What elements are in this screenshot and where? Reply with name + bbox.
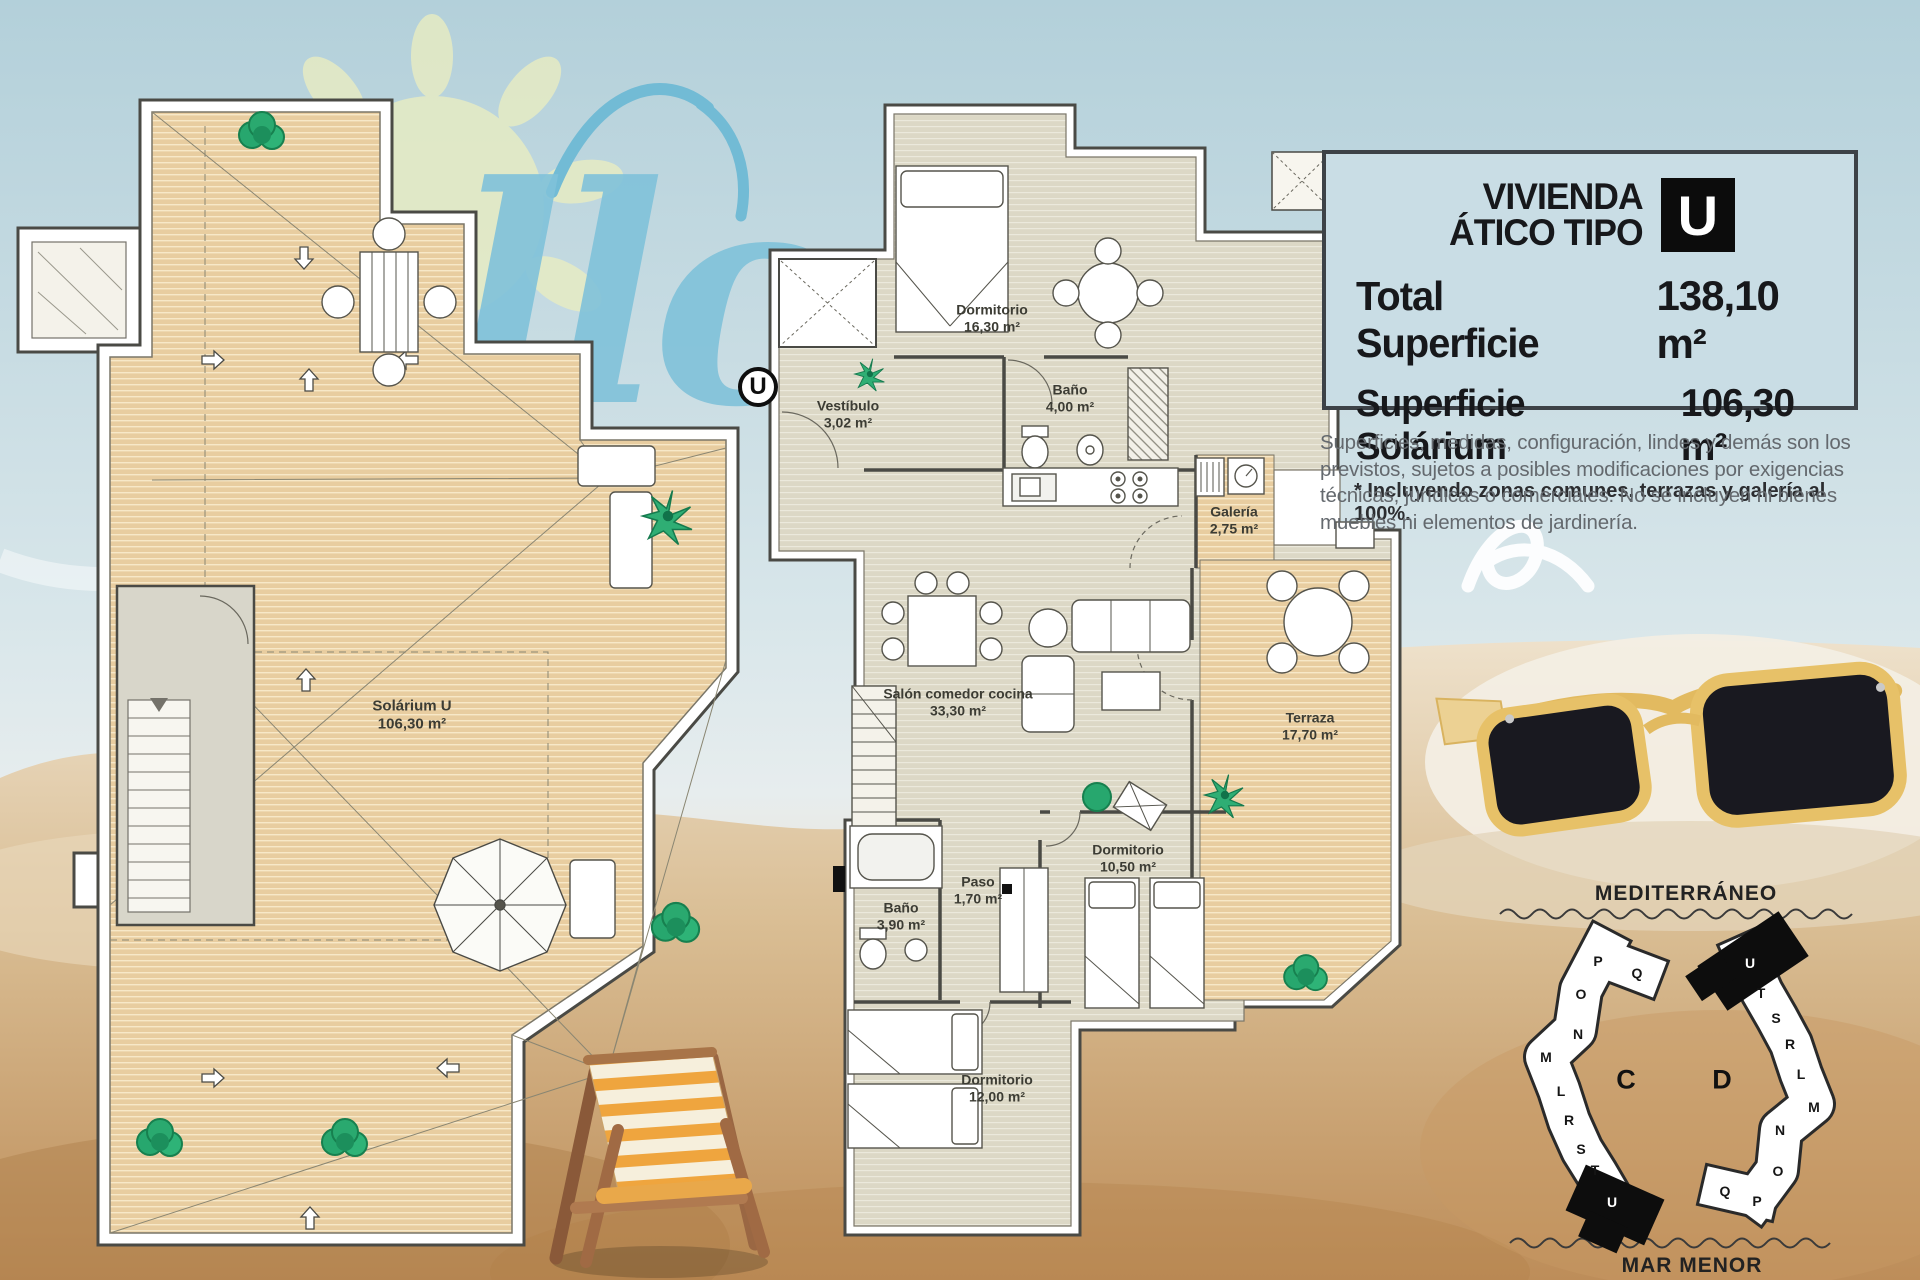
block-d-unit-highlighted: U <box>1745 955 1755 971</box>
block-c-unit: O <box>1576 986 1587 1002</box>
room-label-paso: Paso1,70 m² <box>954 873 1002 906</box>
sun-lounger <box>578 446 655 486</box>
legal-disclaimer: Superficies, medidas, configuración, lin… <box>1320 430 1886 537</box>
block-c-unit: L <box>1557 1083 1566 1099</box>
block-d-unit: L <box>1797 1066 1806 1082</box>
block-d-unit: R <box>1785 1036 1795 1052</box>
unit-info-box: VIVIENDA ÁTICO TIPO U Total Superficie 1… <box>1322 150 1858 410</box>
block-d-unit: O <box>1773 1163 1784 1179</box>
sunglasses-right-lens <box>1694 665 1904 824</box>
block-d-unit: P <box>1752 1193 1761 1209</box>
block-d-unit: Q <box>1720 1183 1731 1199</box>
total-surface-label: Total Superficie <box>1356 273 1622 367</box>
block-c-unit: T <box>1591 1162 1600 1178</box>
brochure-page: llo <box>0 0 1920 1280</box>
elevator-shaft <box>779 259 876 347</box>
room-label-dormitorio-3: Dormitorio12,00 m² <box>961 1071 1033 1104</box>
room-label-vestibulo: Vestíbulo3,02 m² <box>817 397 879 430</box>
mar-menor-label: MAR MENOR <box>1622 1254 1763 1278</box>
room-label-dormitorio-1: Dormitorio16,30 m² <box>956 301 1028 334</box>
block-c-unit: Q <box>1632 965 1643 981</box>
room-label-terraza: Terraza17,70 m² <box>1282 709 1338 742</box>
mediterraneo-label: MEDITERRÁNEO <box>1595 882 1777 906</box>
block-d-unit: M <box>1808 1099 1820 1115</box>
block-d-label: D <box>1712 1065 1732 1096</box>
block-c-unit: S <box>1576 1141 1585 1157</box>
block-c-unit: M <box>1540 1049 1552 1065</box>
unit-marker-circle: U <box>738 367 778 407</box>
room-label-solarium: Solárium U106,30 m² <box>372 697 451 732</box>
sun-lounger <box>610 492 652 588</box>
room-label-salon: Salón comedor cocina33,30 m² <box>883 685 1032 718</box>
room-label-dormitorio-2: Dormitorio10,50 m² <box>1092 841 1164 874</box>
room-label-bano-2: Baño3,90 m² <box>877 899 925 932</box>
deck-table <box>360 252 418 352</box>
room-label-galeria: Galería2,75 m² <box>1210 503 1258 536</box>
block-c-unit: R <box>1564 1112 1574 1128</box>
block-c-unit: P <box>1593 953 1602 969</box>
sun-lounger <box>570 860 615 938</box>
block-c-unit-highlighted: U <box>1607 1194 1617 1210</box>
sunglasses-left-lens <box>1479 696 1650 835</box>
solarium-stairwell <box>117 586 254 925</box>
block-c-unit: N <box>1573 1026 1583 1042</box>
plant-icon <box>1083 783 1111 811</box>
deck-chair-seat-roll <box>604 1186 744 1196</box>
unit-title: VIVIENDA ÁTICO TIPO <box>1449 179 1643 251</box>
total-surface-value: 138,10 m² <box>1656 272 1830 368</box>
unit-letter-badge: U <box>1661 178 1735 252</box>
parasol-icon <box>434 839 566 971</box>
kitchen-counter <box>1003 468 1178 506</box>
block-d-unit: T <box>1757 985 1766 1001</box>
block-d-unit: S <box>1771 1010 1780 1026</box>
entry-door-mark <box>833 866 845 892</box>
washing-machine <box>1196 458 1264 496</box>
block-c-label: C <box>1616 1065 1636 1096</box>
block-d-unit: N <box>1775 1122 1785 1138</box>
room-label-bano-1: Baño4,00 m² <box>1046 381 1094 414</box>
